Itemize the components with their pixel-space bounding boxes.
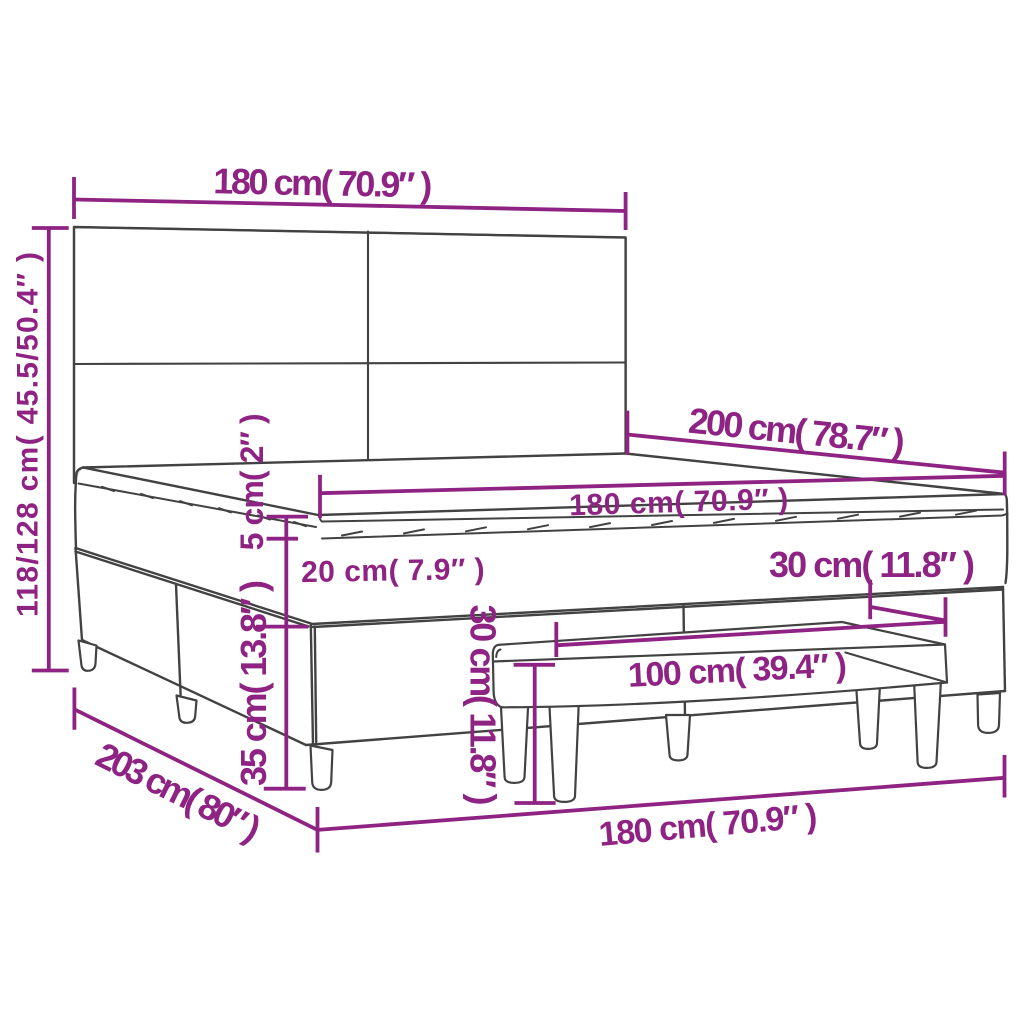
svg-text:5 cm( 2″ ): 5 cm( 2″ ) (234, 413, 270, 550)
svg-text:35 cm( 13.8″ ): 35 cm( 13.8″ ) (233, 580, 274, 786)
svg-text:180 cm( 70.9″ ): 180 cm( 70.9″ ) (213, 160, 433, 205)
svg-text:180 cm( 70.9″ ): 180 cm( 70.9″ ) (569, 483, 789, 523)
svg-text:118/128 cm( 45.5/50.4″ ): 118/128 cm( 45.5/50.4″ ) (12, 252, 45, 617)
svg-text:20 cm( 7.9″ ): 20 cm( 7.9″ ) (301, 553, 485, 589)
svg-text:30 cm( 11.8″ ): 30 cm( 11.8″ ) (769, 544, 975, 585)
svg-text:30 cm( 11.8″ ): 30 cm( 11.8″ ) (463, 605, 504, 806)
